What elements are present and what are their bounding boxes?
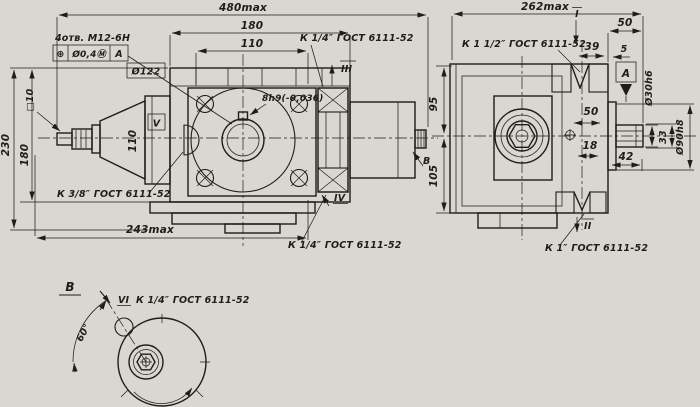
- detail-cover-circle: [118, 318, 206, 406]
- dim-overall-width: 262max: [521, 1, 570, 13]
- datum-flag: А: [616, 62, 636, 102]
- dim-flange-thickness: 42: [617, 151, 633, 163]
- dim-shaft-square: □10: [25, 88, 36, 111]
- dim-spigot-lip: 5: [621, 44, 628, 55]
- port-bottom-marker-side: II: [584, 221, 592, 232]
- front-bolt-holes: [197, 96, 308, 187]
- svg-text:V: V: [153, 119, 161, 130]
- technical-drawing: 480max 180 110 230 180: [0, 0, 700, 407]
- detail-port-marker: VI: [118, 295, 130, 306]
- dim-base-length: 243max: [126, 224, 175, 236]
- dim-total-height: 230: [0, 134, 12, 157]
- drawing-sheet: 480max 180 110 230 180: [0, 0, 700, 407]
- front-base: [150, 202, 315, 233]
- side-dimensions: 262max I 95 105 39 50 5: [428, 1, 694, 213]
- detail-angle-dimension: 60°: [73, 300, 107, 372]
- port-top-marker: III: [341, 64, 352, 75]
- dim-spigot-diameter: Ø90h8: [675, 119, 686, 156]
- port-top-label: К 1/4″ ГОСТ 6111-52: [300, 33, 414, 44]
- front-top-dimensions: 480max 180 110: [57, 2, 428, 130]
- side-view: 262max I 95 105 39 50 5: [428, 1, 698, 254]
- fcf-position-symbol: ⊕: [56, 49, 64, 60]
- fcf-tolerance: Ø0,4Ⓜ: [71, 49, 107, 60]
- side-port-top: [552, 64, 608, 92]
- port-bottom-label: К 1/4″ ГОСТ 6111-52: [288, 240, 402, 251]
- dim-axis-to-bottom: 105: [428, 165, 440, 188]
- side-port-bottom: [556, 192, 606, 213]
- port-drain-marker: V: [148, 114, 165, 130]
- port-drain-label: К 3/8″ ГОСТ 6111-52: [57, 189, 171, 200]
- fcf-datum-ref: А: [114, 49, 123, 60]
- dim-angle: 60°: [75, 322, 93, 344]
- side-port-top-label: К 1 1/2″ ГОСТ 6111-52: [462, 39, 586, 50]
- port-top-annotation: К 1/4″ ГОСТ 6111-52 III: [300, 33, 414, 87]
- axis-target-symbol: [564, 129, 576, 141]
- dim-overall-length: 480max: [218, 2, 268, 14]
- side-port-bottom-annotation: II К 1″ ГОСТ 6111-52: [545, 214, 648, 254]
- dim-port-offset: 39: [584, 41, 599, 53]
- dim-shaft-diameter: Ø30h6: [644, 70, 655, 107]
- dim-keyway: 8h9(-0,036): [262, 94, 324, 104]
- dim-flange-width: 180: [241, 20, 264, 32]
- dim-port-top-height: 50: [583, 106, 598, 118]
- detail-view-label: В: [65, 280, 74, 294]
- dim-cone: 110: [127, 130, 139, 153]
- port-top-marker-side: I: [575, 9, 579, 20]
- detail-port-section: [115, 318, 133, 336]
- dim-shaft-overhang: 50: [617, 17, 632, 29]
- dim-top-to-axis: 95: [428, 96, 440, 111]
- dim-shaft-flat: 33: [658, 130, 669, 144]
- datum-label: А: [621, 68, 630, 80]
- port-bottom-marker: IV: [334, 193, 346, 204]
- dim-bolt-spacing: 110: [241, 38, 264, 50]
- detail-port-annotation: VI К 1/4″ ГОСТ 6111-52: [100, 291, 250, 306]
- holes-note: 4отв. М12-6Н: [54, 33, 130, 44]
- detail-view-b: В 60°: [59, 280, 250, 406]
- front-view: 480max 180 110 230 180: [0, 2, 438, 251]
- front-fcf: 4отв. М12-6Н ⊕ Ø0,4Ⓜ А Ø122: [53, 33, 232, 124]
- detail-port-label: К 1/4″ ГОСТ 6111-52: [136, 295, 250, 306]
- front-bearing-and-cylinder: [318, 88, 426, 192]
- detail-ticks: [121, 314, 210, 397]
- dim-bolt-circle: Ø122: [131, 67, 161, 78]
- dim-port-bottom-height: 18: [582, 140, 597, 152]
- dim-flange-height: 180: [19, 144, 31, 167]
